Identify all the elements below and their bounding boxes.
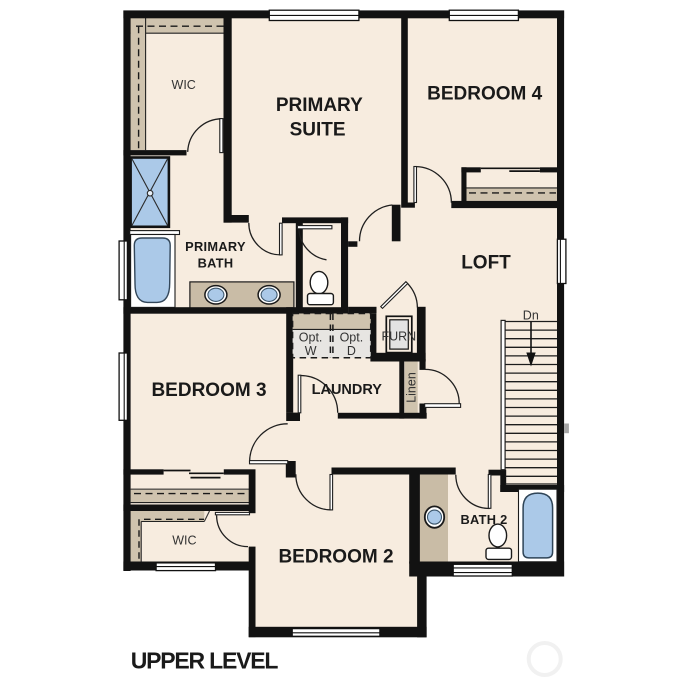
svg-text:LAUNDRY: LAUNDRY bbox=[312, 382, 383, 398]
svg-text:BEDROOM 3: BEDROOM 3 bbox=[151, 380, 266, 401]
svg-text:BEDROOM 2: BEDROOM 2 bbox=[278, 547, 393, 568]
svg-text:BATH: BATH bbox=[198, 256, 234, 271]
svg-text:LOFT: LOFT bbox=[461, 253, 511, 274]
svg-text:D: D bbox=[347, 344, 356, 358]
svg-text:Dn: Dn bbox=[523, 309, 539, 323]
svg-text:PRIMARY: PRIMARY bbox=[276, 95, 363, 116]
svg-text:W: W bbox=[305, 344, 317, 358]
svg-text:BATH 2: BATH 2 bbox=[460, 512, 507, 527]
svg-text:Opt.: Opt. bbox=[299, 331, 323, 345]
svg-text:UPPER LEVEL: UPPER LEVEL bbox=[131, 648, 279, 674]
svg-text:BEDROOM 4: BEDROOM 4 bbox=[427, 84, 543, 105]
svg-text:SUITE: SUITE bbox=[290, 120, 346, 141]
svg-text:Linen: Linen bbox=[405, 372, 419, 403]
svg-text:WIC: WIC bbox=[172, 78, 196, 92]
svg-text:WIC: WIC bbox=[172, 534, 196, 548]
svg-text:FURN: FURN bbox=[381, 330, 416, 344]
svg-text:PRIMARY: PRIMARY bbox=[185, 239, 246, 254]
svg-text:Opt.: Opt. bbox=[340, 331, 364, 345]
